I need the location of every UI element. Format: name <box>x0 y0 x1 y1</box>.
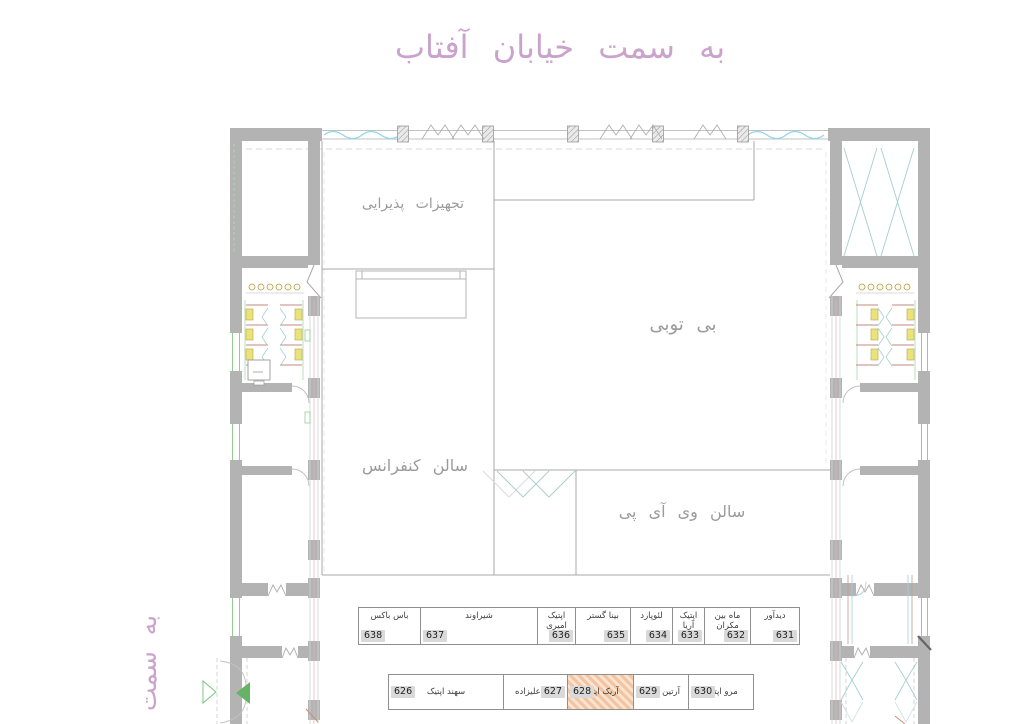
shop-name: بینا گستر <box>576 608 630 621</box>
shop-unit-627: جلد علیزاده 627 <box>504 675 568 709</box>
shop-unit-637: شیراوند 637 <box>421 608 538 644</box>
shop-number-badge: 630 <box>691 686 715 698</box>
shop-name: شیراوند <box>421 608 537 621</box>
shop-unit-634: لئوپارد 634 <box>631 608 673 644</box>
shop-unit-629: آرتین اپتیک 629 <box>634 675 689 709</box>
left-wing-rooms <box>242 141 321 724</box>
shop-unit-630: مرو اپتیک 630 <box>689 675 753 709</box>
reception-counter <box>356 271 466 318</box>
shop-unit-631: دیدآور 631 <box>751 608 799 644</box>
shop-unit-633: اپتیک آریا 633 <box>673 608 705 644</box>
shop-unit-628-highlighted: آریک اپتیک 628 <box>568 675 634 709</box>
glass-wave-left <box>324 132 400 139</box>
room-label-vip: سالن وی آی پی <box>592 502 772 521</box>
shop-name: دیدآور <box>751 608 799 621</box>
top-curtain-wall <box>230 125 930 572</box>
bottom-right-block <box>841 575 931 724</box>
shop-unit-636: اپتیک امیری 636 <box>538 608 576 644</box>
glass-wave-right <box>748 132 824 139</box>
shop-number-badge: 638 <box>361 630 385 642</box>
shop-name: ماه بین مکران <box>705 608 750 631</box>
shop-unit-638: باس باکس 638 <box>359 608 421 644</box>
room-label-conference: سالن کنفرانس <box>335 456 495 475</box>
shop-number-badge: 628 <box>570 686 594 698</box>
shop-name: لئوپارد <box>631 608 672 621</box>
shop-unit-626: سهند اپتیک 626 <box>389 675 504 709</box>
right-wing-rooms <box>829 141 918 724</box>
shop-name: باس باکس <box>359 608 420 621</box>
shop-number-badge: 637 <box>423 630 447 642</box>
room-label-main-hall: بی توبی <box>608 314 758 335</box>
shop-row-top: باس باکس 638 شیراوند 637 اپتیک امیری 636… <box>358 607 800 645</box>
side-street-label: به سمت <box>133 608 163 718</box>
shop-row-bottom: سهند اپتیک 626 جلد علیزاده 627 آریک اپتی… <box>388 674 754 710</box>
shop-number-badge: 629 <box>636 686 660 698</box>
shop-number-badge: 633 <box>678 630 702 642</box>
shop-unit-635: بینا گستر 635 <box>576 608 631 644</box>
shop-number-badge: 634 <box>646 630 670 642</box>
left-outer-wall <box>229 141 243 724</box>
shop-number-badge: 627 <box>541 686 565 698</box>
shop-number-badge: 631 <box>773 630 797 642</box>
shop-number-badge: 635 <box>604 630 628 642</box>
entrance-arrow-outline-icon <box>203 681 216 703</box>
floor-plan: به سمت خیابان آفتاب به سمت تجهیزات پذیرا… <box>0 0 1024 724</box>
shop-unit-632: ماه بین مکران 632 <box>705 608 751 644</box>
shop-number-badge: 636 <box>549 630 573 642</box>
shop-name: اپتیک امیری <box>538 608 575 631</box>
room-label-catering: تجهیزات پذیرایی <box>338 196 488 212</box>
shop-number-badge: 632 <box>724 630 748 642</box>
right-toilet-block <box>856 284 915 380</box>
equipment-box <box>248 360 270 380</box>
bottom-left-entrance <box>203 658 250 724</box>
shop-name: اپتیک آریا <box>673 608 704 631</box>
street-title: به سمت خیابان آفتاب <box>355 28 765 66</box>
shop-number-badge: 626 <box>391 686 415 698</box>
